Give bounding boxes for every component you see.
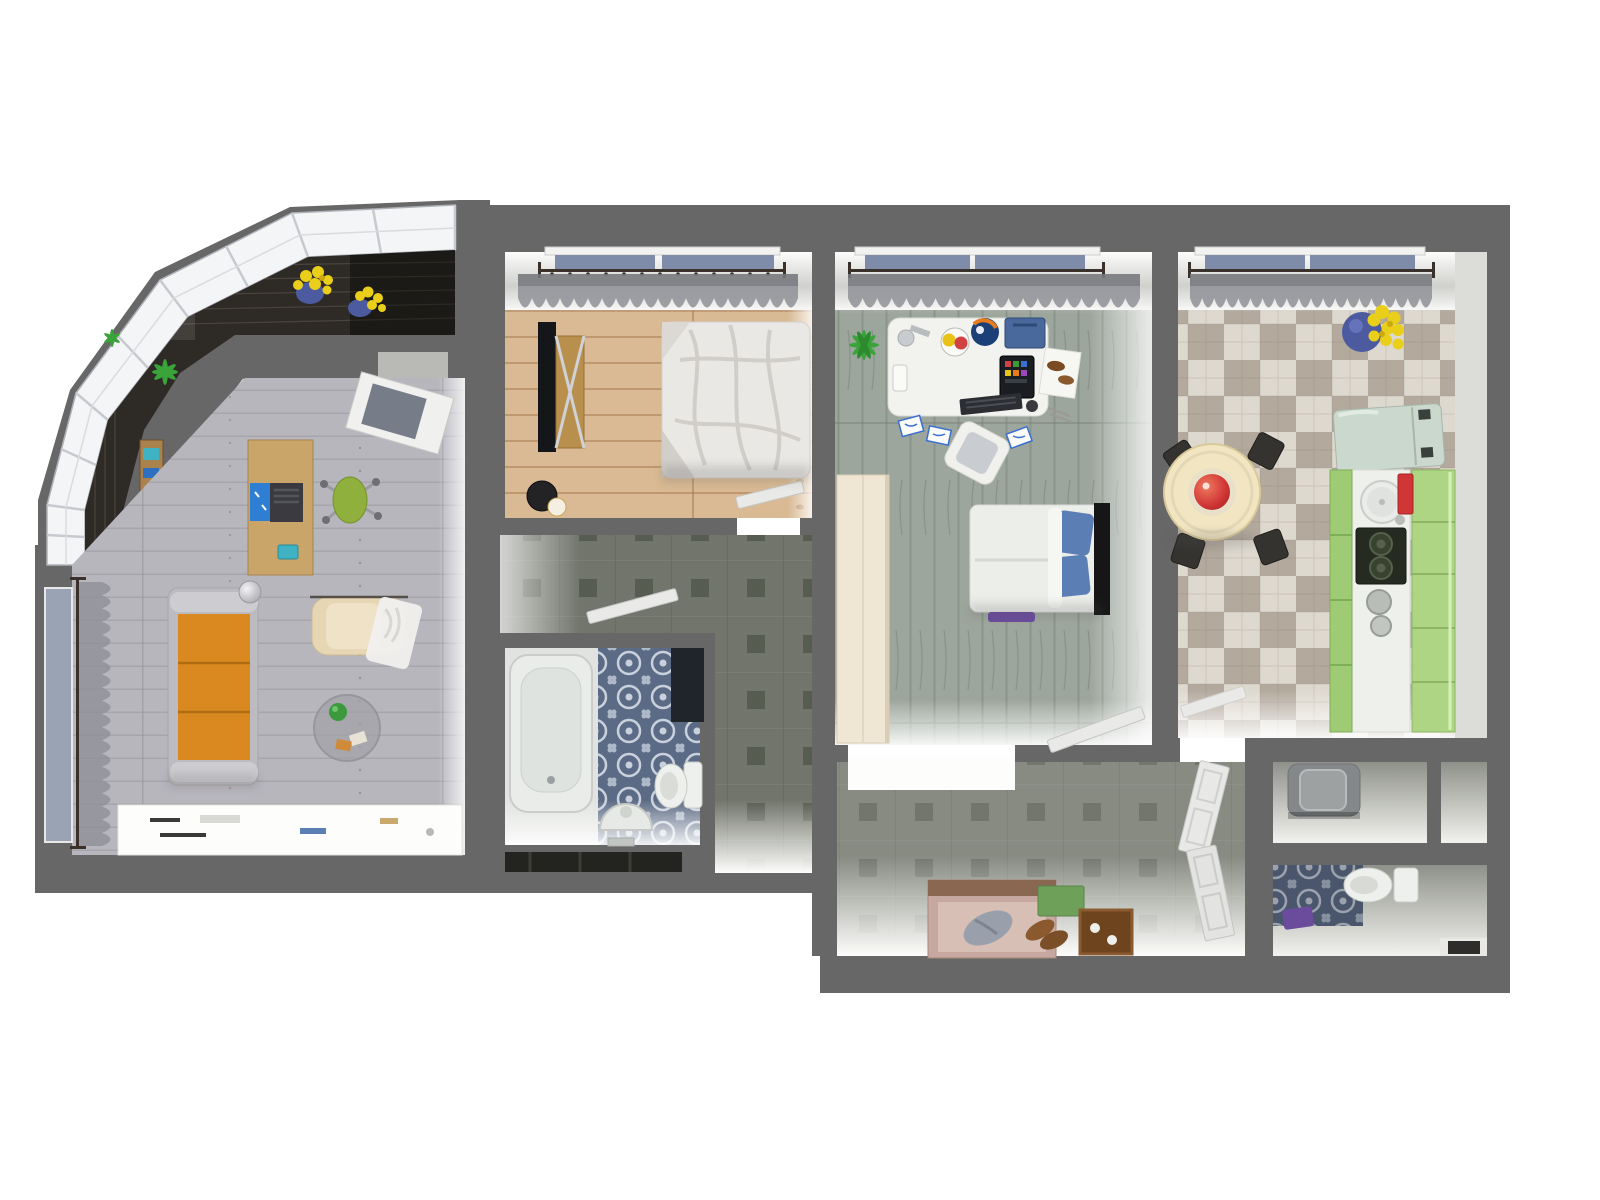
- wall-office-left: [812, 535, 837, 956]
- room-wc: [1273, 865, 1487, 956]
- headboard: [1094, 503, 1110, 615]
- study-bed: [970, 503, 1110, 615]
- wall-top: [440, 205, 1510, 252]
- hallway-threshold: [848, 757, 1015, 790]
- wall-hall-right: [1245, 762, 1273, 956]
- stove: [1356, 528, 1406, 584]
- rod-bracket: [70, 846, 86, 849]
- wall-right: [1487, 205, 1510, 993]
- dining-table: [1164, 444, 1260, 540]
- desk-item-teal: [278, 545, 298, 559]
- living-desk: [248, 440, 313, 575]
- wall-bath-top: [480, 633, 715, 648]
- desk-globe: [971, 318, 999, 346]
- room-hallway: [837, 757, 1245, 958]
- living-rug: [118, 805, 462, 855]
- bathtub: [510, 655, 592, 812]
- corridor-light: [500, 535, 580, 633]
- desk-tablet: [1000, 356, 1034, 398]
- study-wardrobe: [837, 475, 889, 743]
- kitchen-counter: [1330, 470, 1455, 732]
- wall-bottom-left: [35, 855, 480, 893]
- bath-toilet: [655, 762, 702, 808]
- living-window: [45, 588, 72, 842]
- vent-shaft: [505, 852, 682, 872]
- wall-closet-wc: [1273, 843, 1487, 865]
- tv-dresser: [538, 322, 584, 452]
- floor-plan-canvas: [0, 0, 1600, 1200]
- wc-toilet: [1344, 868, 1418, 902]
- kitchen-right-band: [1455, 252, 1487, 738]
- laptop-screen: [250, 483, 270, 521]
- wall-office-bottom-a: [835, 745, 848, 762]
- wall-bed-office: [812, 252, 835, 535]
- bedside-lamp: [548, 498, 566, 516]
- living-right-wall-face: [438, 378, 465, 855]
- wall-kitchen-bottom-b: [1245, 738, 1487, 762]
- kitchen-window: [1188, 247, 1435, 308]
- living-curtain-rod: [76, 580, 79, 846]
- corridor-fade: [715, 800, 812, 873]
- room-study: [835, 247, 1152, 753]
- desk-blue-crate: [1005, 318, 1045, 348]
- washing-machine: [1288, 764, 1360, 819]
- wall-living-bed: [465, 252, 505, 893]
- desk-mug: [1026, 400, 1038, 412]
- coffee-table: [314, 695, 380, 761]
- rod-bracket: [70, 577, 86, 580]
- floor-lamp: [239, 581, 261, 603]
- desk-paper-snacks: [1039, 348, 1081, 399]
- wall-bed-bottom-b: [800, 518, 812, 535]
- living-door-gap: [378, 352, 448, 378]
- red-cutting-board: [1398, 474, 1413, 514]
- red-bowl: [1194, 474, 1230, 510]
- room-kitchen: [1162, 247, 1487, 738]
- wooden-tray: [1080, 910, 1132, 954]
- tv-panel: [538, 322, 556, 452]
- floor-plan-render: [0, 0, 1600, 1200]
- wc-mat-purple: [1282, 906, 1314, 930]
- wall-office-bottom-b: [1015, 745, 1152, 762]
- bath-niche: [671, 648, 704, 722]
- sofa: [168, 588, 258, 785]
- room-bathroom: [505, 648, 704, 872]
- room-storage: [1273, 762, 1487, 843]
- green-box: [1038, 886, 1084, 916]
- closet-2-floor: [1441, 762, 1487, 843]
- bed-double: [662, 322, 810, 478]
- wall-kitchen-bottom-a: [1152, 738, 1180, 762]
- wall-bed-bottom-a: [480, 518, 737, 535]
- fridge: [1333, 403, 1445, 472]
- wall-bottom-right: [820, 956, 1510, 993]
- nook-dark-mat: [1448, 941, 1480, 954]
